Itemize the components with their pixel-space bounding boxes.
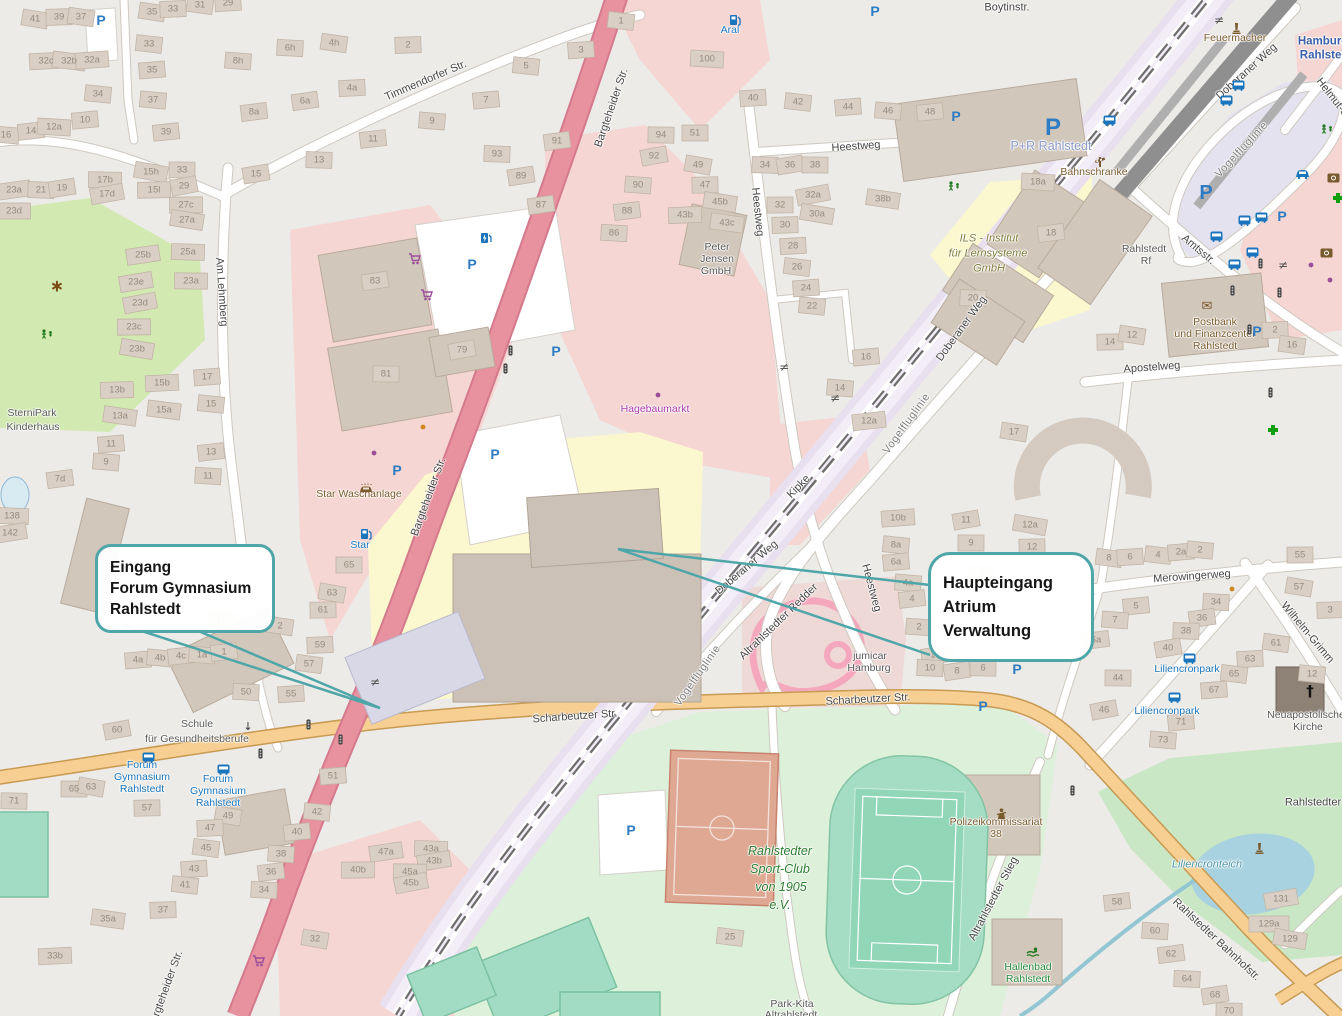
- callout-line: Verwaltung: [943, 619, 1079, 643]
- callout-line: Haupteingang: [943, 571, 1079, 595]
- callout-haupteingang-atrium: Haupteingang Atrium Verwaltung: [928, 552, 1094, 662]
- stadium: [824, 753, 991, 1006]
- callout-line: Forum Gymnasium: [110, 578, 260, 599]
- callout-line: Eingang: [110, 557, 260, 578]
- curved-building-17: [1027, 431, 1139, 498]
- callout-line: Rahlstedt: [110, 599, 260, 620]
- pitch-red: [665, 750, 778, 906]
- map-canvas[interactable]: Timmendorfer Str.Bargteheider Str.Bargte…: [0, 0, 1342, 1016]
- retail-area-east: [545, 125, 785, 480]
- map-base-layer: [0, 0, 1342, 1016]
- callout-line: Atrium: [943, 595, 1079, 619]
- callout-eingang-forum-gymnasium: Eingang Forum Gymnasium Rahlstedt: [95, 544, 275, 633]
